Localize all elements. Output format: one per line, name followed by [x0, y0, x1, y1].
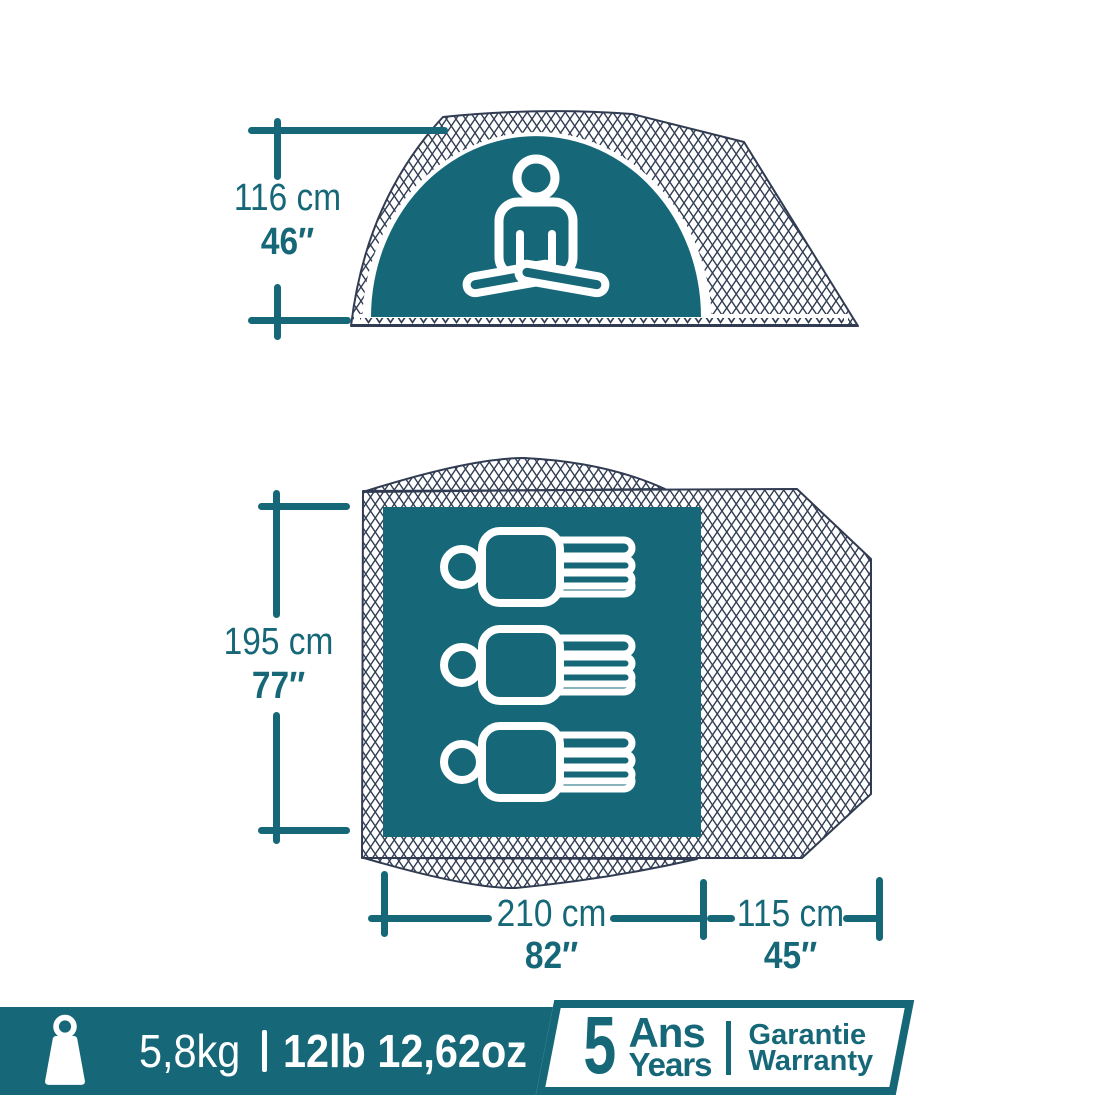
- vestibule-cm-value: 115 cm: [718, 893, 863, 935]
- weight-metric: 5,8kg: [139, 1024, 240, 1078]
- weight-separator: [262, 1030, 267, 1072]
- warranty-years-fr: Ans: [628, 1016, 711, 1050]
- floor-bottom-flap: [364, 858, 697, 888]
- warranty-guarantee-fr: Garantie: [749, 1022, 874, 1048]
- weight-icon: [33, 1014, 97, 1088]
- width-dim-label: 210 cm 82″: [479, 893, 624, 977]
- warranty-years-number: 5: [583, 998, 616, 1093]
- weight-info: 5,8kg 12lb 12,62oz: [33, 1007, 554, 1095]
- width-in-value: 82″: [479, 935, 624, 977]
- height-dim-label: 116 cm 46″: [215, 176, 360, 264]
- depth-dim-label: 195 cm 77″: [206, 620, 351, 708]
- width-dim-tick-left: [381, 871, 388, 937]
- floor-top-flap: [363, 458, 665, 492]
- vestibule-in-value: 45″: [718, 935, 863, 977]
- width-dim-line-a: [368, 915, 492, 922]
- height-dim-line-lower: [274, 284, 281, 340]
- warranty-guarantee-en: Warranty: [749, 1048, 874, 1074]
- height-in-value: 46″: [215, 220, 360, 264]
- warranty-divider: [726, 1021, 731, 1075]
- tent-floor-plan: [350, 448, 890, 903]
- depth-dim-tick-top: [258, 503, 350, 510]
- width-cm-value: 210 cm: [479, 893, 624, 935]
- vestibule-dim-label: 115 cm 45″: [718, 893, 863, 977]
- depth-in-value: 77″: [206, 664, 351, 708]
- height-cm-value: 116 cm: [215, 176, 360, 220]
- warranty-years-labels: Ans Years: [628, 1016, 711, 1079]
- height-dim-tick-bottom: [248, 317, 351, 324]
- depth-dim-tick-bottom: [258, 827, 350, 834]
- width-dim-tick-right: [876, 877, 883, 941]
- warranty-badge-content: 5 Ans Years Garantie Warranty: [545, 1000, 905, 1095]
- weight-imperial: 12lb 12,62oz: [283, 1024, 527, 1078]
- depth-cm-value: 195 cm: [206, 620, 351, 664]
- depth-dim-line-lower: [273, 712, 280, 844]
- tent-dimensions-infographic: 116 cm 46″ 195 cm 77″: [0, 0, 1100, 1100]
- warranty-years-en: Years: [628, 1050, 711, 1079]
- width-dim-tick-mid: [700, 879, 707, 940]
- warranty-guarantee-labels: Garantie Warranty: [749, 1022, 874, 1074]
- height-dim-tick-top: [248, 127, 448, 134]
